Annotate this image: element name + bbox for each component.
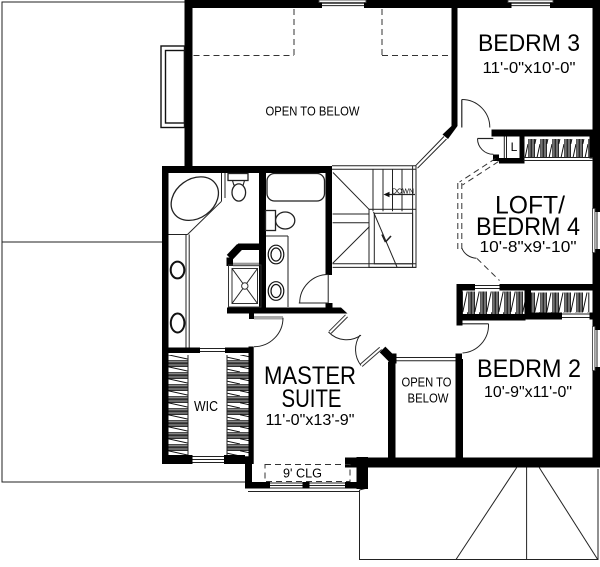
svg-text:11'-0"x10'-0": 11'-0"x10'-0" [483, 60, 576, 77]
svg-text:11'-0"x13'-9": 11'-0"x13'-9" [266, 412, 355, 429]
svg-text:L: L [511, 140, 518, 154]
svg-text:10'-8"x9'-10": 10'-8"x9'-10" [480, 239, 577, 256]
svg-text:OPEN TO BELOW: OPEN TO BELOW [266, 104, 360, 119]
svg-text:9' CLG: 9' CLG [283, 467, 322, 481]
svg-text:BELOW: BELOW [408, 392, 449, 406]
svg-text:BEDRM 4: BEDRM 4 [476, 213, 580, 241]
svg-text:SUITE: SUITE [282, 385, 342, 413]
svg-text:BEDRM 3: BEDRM 3 [478, 30, 580, 57]
svg-text:BEDRM 2: BEDRM 2 [477, 355, 581, 383]
svg-text:DOWN: DOWN [392, 187, 414, 196]
svg-text:10'-9"x11'-0": 10'-9"x11'-0" [484, 384, 572, 401]
svg-text:OPEN TO: OPEN TO [402, 376, 452, 390]
svg-text:WIC: WIC [194, 399, 218, 415]
